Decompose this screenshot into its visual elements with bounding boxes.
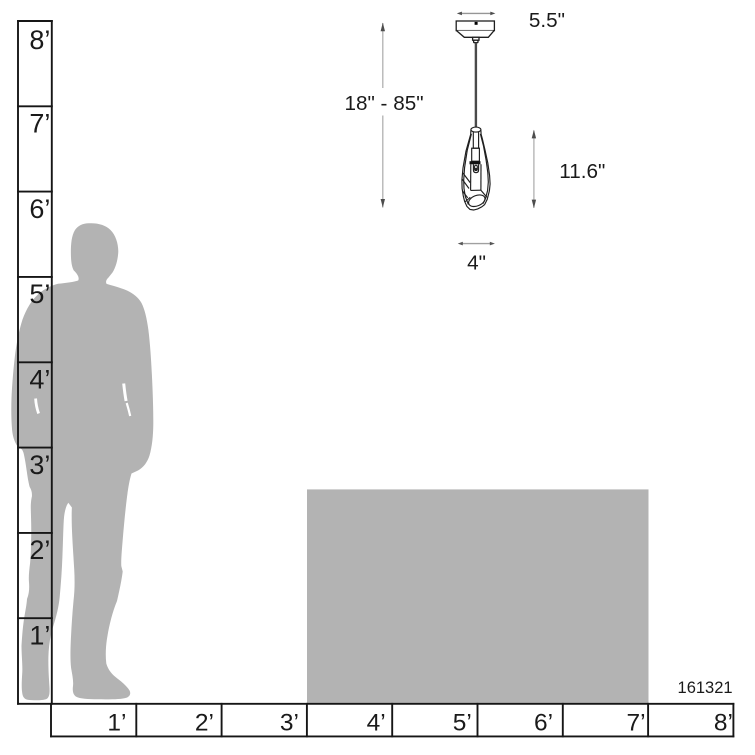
- svg-text:3’: 3’: [29, 450, 50, 480]
- svg-text:2’: 2’: [195, 710, 214, 737]
- svg-text:6’: 6’: [534, 710, 553, 737]
- svg-text:11.6": 11.6": [559, 160, 605, 183]
- svg-text:18" - 85": 18" - 85": [344, 92, 423, 115]
- svg-text:7’: 7’: [29, 109, 50, 139]
- svg-text:6’: 6’: [29, 194, 50, 224]
- svg-text:5.5": 5.5": [529, 9, 565, 32]
- svg-text:4": 4": [467, 252, 486, 275]
- svg-text:1’: 1’: [29, 621, 50, 651]
- svg-text:5’: 5’: [453, 710, 472, 737]
- svg-text:4’: 4’: [367, 710, 386, 737]
- svg-text:7’: 7’: [627, 710, 646, 737]
- svg-text:8’: 8’: [714, 710, 733, 737]
- svg-text:161321: 161321: [678, 679, 733, 697]
- svg-text:8’: 8’: [29, 25, 50, 55]
- svg-text:4’: 4’: [29, 365, 50, 395]
- svg-text:3’: 3’: [280, 710, 299, 737]
- svg-text:5’: 5’: [29, 279, 50, 309]
- svg-text:2’: 2’: [29, 535, 50, 565]
- svg-text:1’: 1’: [107, 710, 126, 737]
